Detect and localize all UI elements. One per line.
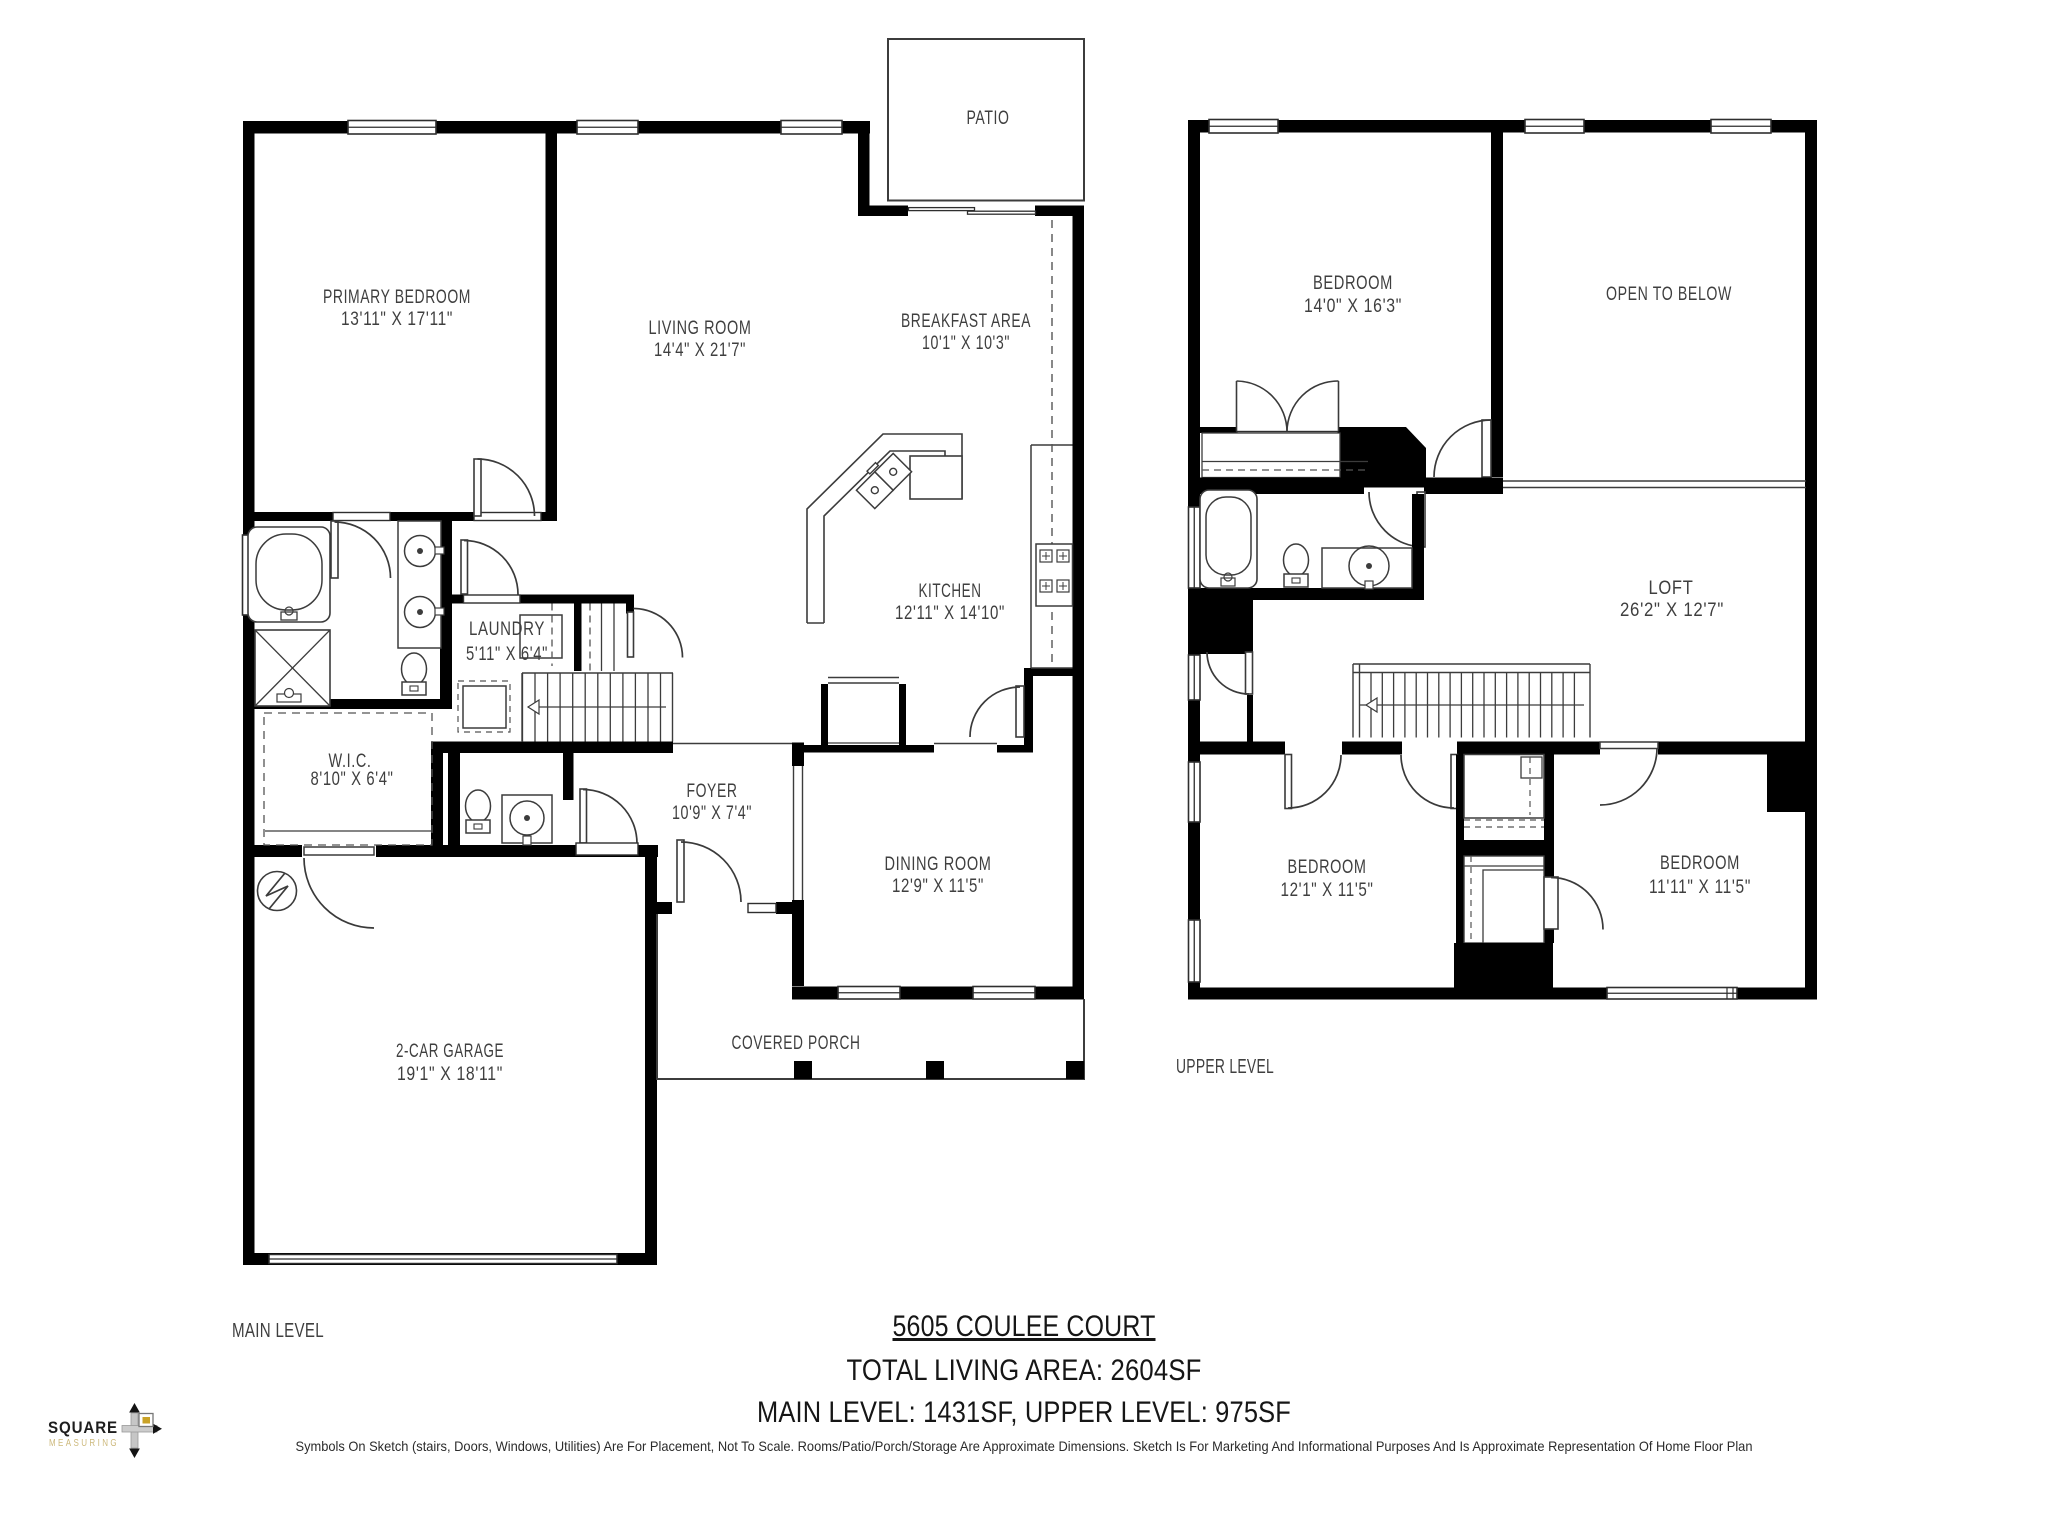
svg-text:LOFT: LOFT	[1649, 578, 1694, 599]
svg-text:5'11" X 6'4": 5'11" X 6'4"	[466, 644, 548, 665]
svg-text:11'11" X 11'5": 11'11" X 11'5"	[1649, 877, 1751, 898]
svg-text:FOYER: FOYER	[687, 781, 738, 802]
svg-text:TOTAL LIVING AREA: 2604SF: TOTAL LIVING AREA: 2604SF	[847, 1354, 1202, 1387]
svg-text:BEDROOM: BEDROOM	[1660, 853, 1740, 874]
svg-text:COVERED PORCH: COVERED PORCH	[732, 1033, 861, 1054]
svg-text:MEASURING: MEASURING	[49, 1438, 119, 1449]
svg-text:PRIMARY BEDROOM: PRIMARY BEDROOM	[323, 287, 471, 308]
svg-text:14'4" X 21'7": 14'4" X 21'7"	[654, 340, 746, 361]
svg-text:OPEN TO BELOW: OPEN TO BELOW	[1606, 284, 1732, 305]
svg-text:SQUARE: SQUARE	[48, 1418, 118, 1437]
svg-text:10'9" X 7'4": 10'9" X 7'4"	[672, 803, 752, 824]
svg-text:PATIO: PATIO	[967, 108, 1010, 129]
svg-text:5605 COULEE COURT: 5605 COULEE COURT	[893, 1310, 1156, 1343]
svg-text:BEDROOM: BEDROOM	[1288, 857, 1367, 878]
svg-text:BEDROOM: BEDROOM	[1313, 273, 1393, 294]
svg-text:MAIN LEVEL: 1431SF, UPPER LEVE: MAIN LEVEL: 1431SF, UPPER LEVEL: 975SF	[757, 1396, 1291, 1429]
svg-text:12'11" X 14'10": 12'11" X 14'10"	[895, 603, 1005, 624]
svg-text:19'1" X 18'11": 19'1" X 18'11"	[397, 1064, 503, 1085]
svg-text:13'11" X 17'11": 13'11" X 17'11"	[341, 309, 453, 330]
svg-text:26'2" X 12'7": 26'2" X 12'7"	[1620, 600, 1724, 621]
svg-text:8'10" X 6'4": 8'10" X 6'4"	[311, 769, 394, 790]
svg-text:2-CAR GARAGE: 2-CAR GARAGE	[396, 1041, 504, 1062]
svg-text:14'0" X 16'3": 14'0" X 16'3"	[1304, 296, 1402, 317]
svg-text:LAUNDRY: LAUNDRY	[469, 619, 545, 640]
svg-text:Symbols On Sketch (stairs, Doo: Symbols On Sketch (stairs, Doors, Window…	[296, 1438, 1753, 1454]
svg-text:12'9" X 11'5": 12'9" X 11'5"	[892, 876, 984, 897]
svg-text:DINING ROOM: DINING ROOM	[885, 854, 992, 875]
svg-text:LIVING ROOM: LIVING ROOM	[649, 318, 752, 339]
svg-text:10'1" X 10'3": 10'1" X 10'3"	[922, 333, 1010, 354]
svg-text:12'1" X 11'5": 12'1" X 11'5"	[1281, 880, 1374, 901]
svg-text:KITCHEN: KITCHEN	[919, 581, 982, 602]
svg-text:MAIN LEVEL: MAIN LEVEL	[232, 1320, 324, 1342]
svg-text:UPPER LEVEL: UPPER LEVEL	[1176, 1056, 1274, 1078]
svg-text:BREAKFAST AREA: BREAKFAST AREA	[901, 311, 1031, 332]
